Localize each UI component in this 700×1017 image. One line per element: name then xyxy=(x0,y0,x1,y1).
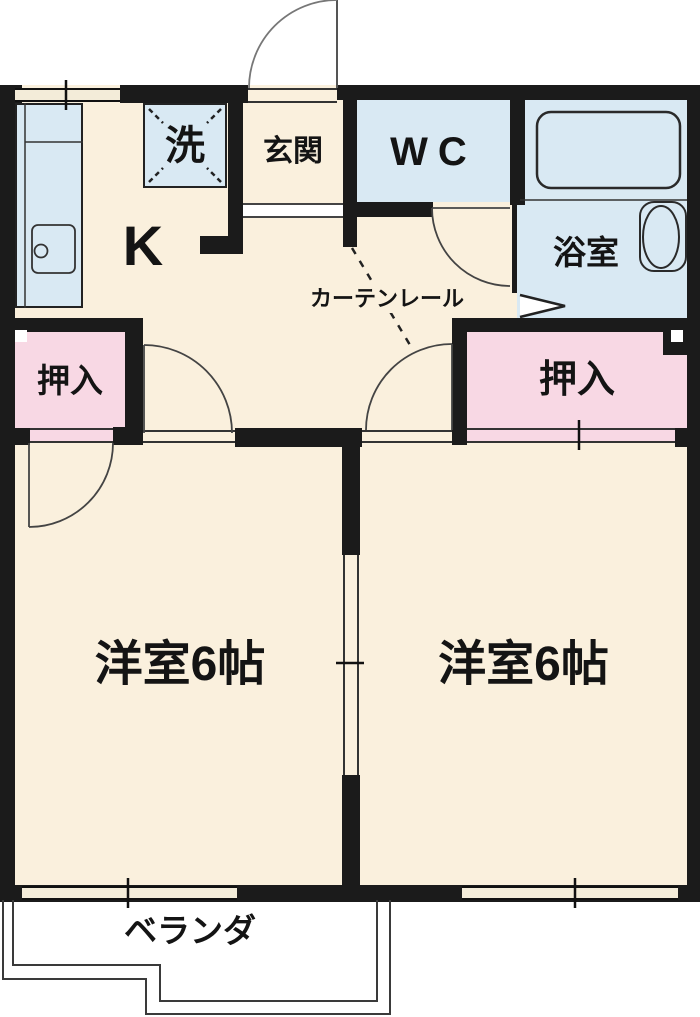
bath-label: 浴室 xyxy=(520,223,652,281)
window-room-left-south xyxy=(22,886,237,900)
wall-entrance-left xyxy=(228,97,243,254)
partition-sliding-door xyxy=(343,555,359,775)
wall-band-a xyxy=(12,428,30,445)
wall-east xyxy=(687,85,700,902)
room-left-label: 洋室6帖 xyxy=(15,600,345,730)
curtain-rail-label: カーテンレール xyxy=(322,285,452,313)
wall-kitchen-stub xyxy=(200,236,243,254)
closet-right-front xyxy=(467,428,675,443)
entrance-step xyxy=(243,203,343,218)
wall-band-c xyxy=(235,428,362,447)
closet-left-label: 押入 xyxy=(15,332,125,428)
veranda-label: ベランダ xyxy=(60,905,320,955)
entrance-threshold xyxy=(248,88,337,103)
wall-center-upper xyxy=(342,447,360,555)
closet-left-front xyxy=(30,428,113,443)
entrance-door-arc xyxy=(249,0,337,88)
kitchen-counter xyxy=(15,103,83,308)
kitchen-label: K xyxy=(98,212,188,280)
wall-entrance-right xyxy=(343,97,357,247)
wall-center-lower xyxy=(342,775,360,890)
entrance-label: 玄関 xyxy=(243,122,343,182)
wall-wc-south xyxy=(357,202,433,217)
laundry-label: 洗 xyxy=(143,103,227,188)
wall-band-b xyxy=(113,427,143,445)
window-room-right-south xyxy=(462,886,678,900)
room-right-label: 洋室6帖 xyxy=(360,600,687,730)
window-kitchen-north xyxy=(15,88,120,102)
wall-closet-right-west xyxy=(452,332,467,445)
wall-west xyxy=(0,87,15,902)
door-threshold-right-room xyxy=(362,430,452,443)
closet-right-label: 押入 xyxy=(467,332,687,428)
floor-plan: 洗 玄関 WC 浴室 K カーテンレール 押入 押入 洋室6帖 洋室6帖 ベラン… xyxy=(0,0,700,1017)
wall-bath-west xyxy=(512,205,517,293)
wall-band-d xyxy=(675,428,700,447)
bathroom xyxy=(517,100,687,318)
wc-label: WC xyxy=(357,103,510,200)
wall-wc-east xyxy=(510,97,525,205)
door-threshold-left-room xyxy=(143,430,235,443)
